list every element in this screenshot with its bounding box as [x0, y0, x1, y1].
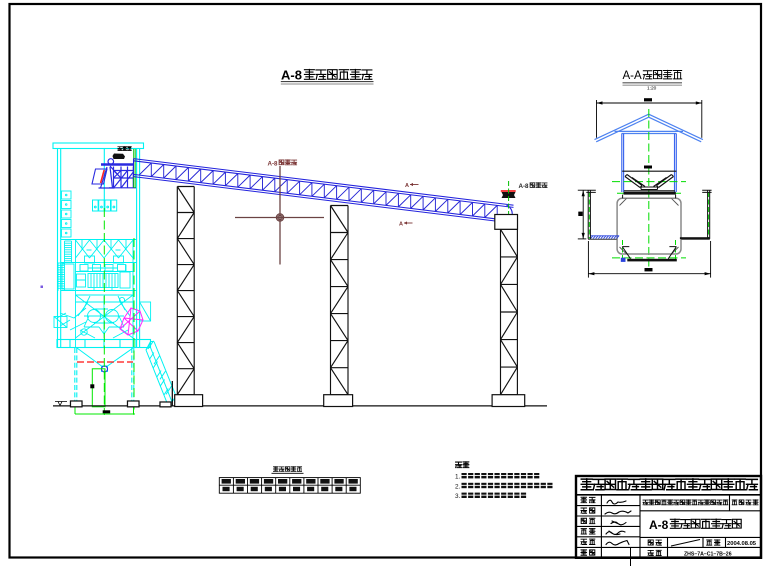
- svg-text:2004.08.05: 2004.08.05: [727, 541, 757, 547]
- svg-text:ZHS–7A–C1–7B–26: ZHS–7A–C1–7B–26: [684, 551, 732, 557]
- svg-text:1.: 1.: [455, 474, 461, 481]
- svg-text:2.: 2.: [455, 483, 461, 490]
- svg-text:A-8: A-8: [519, 183, 530, 190]
- svg-text:A-A: A-A: [623, 70, 643, 82]
- svg-text:A-8: A-8: [268, 161, 279, 168]
- svg-text:1:20: 1:20: [647, 86, 657, 92]
- svg-text:A-8: A-8: [649, 518, 669, 532]
- svg-text:A-8: A-8: [281, 68, 302, 83]
- svg-text:3.: 3.: [455, 493, 461, 500]
- svg-text:A: A: [399, 222, 403, 228]
- svg-text:A: A: [405, 183, 409, 189]
